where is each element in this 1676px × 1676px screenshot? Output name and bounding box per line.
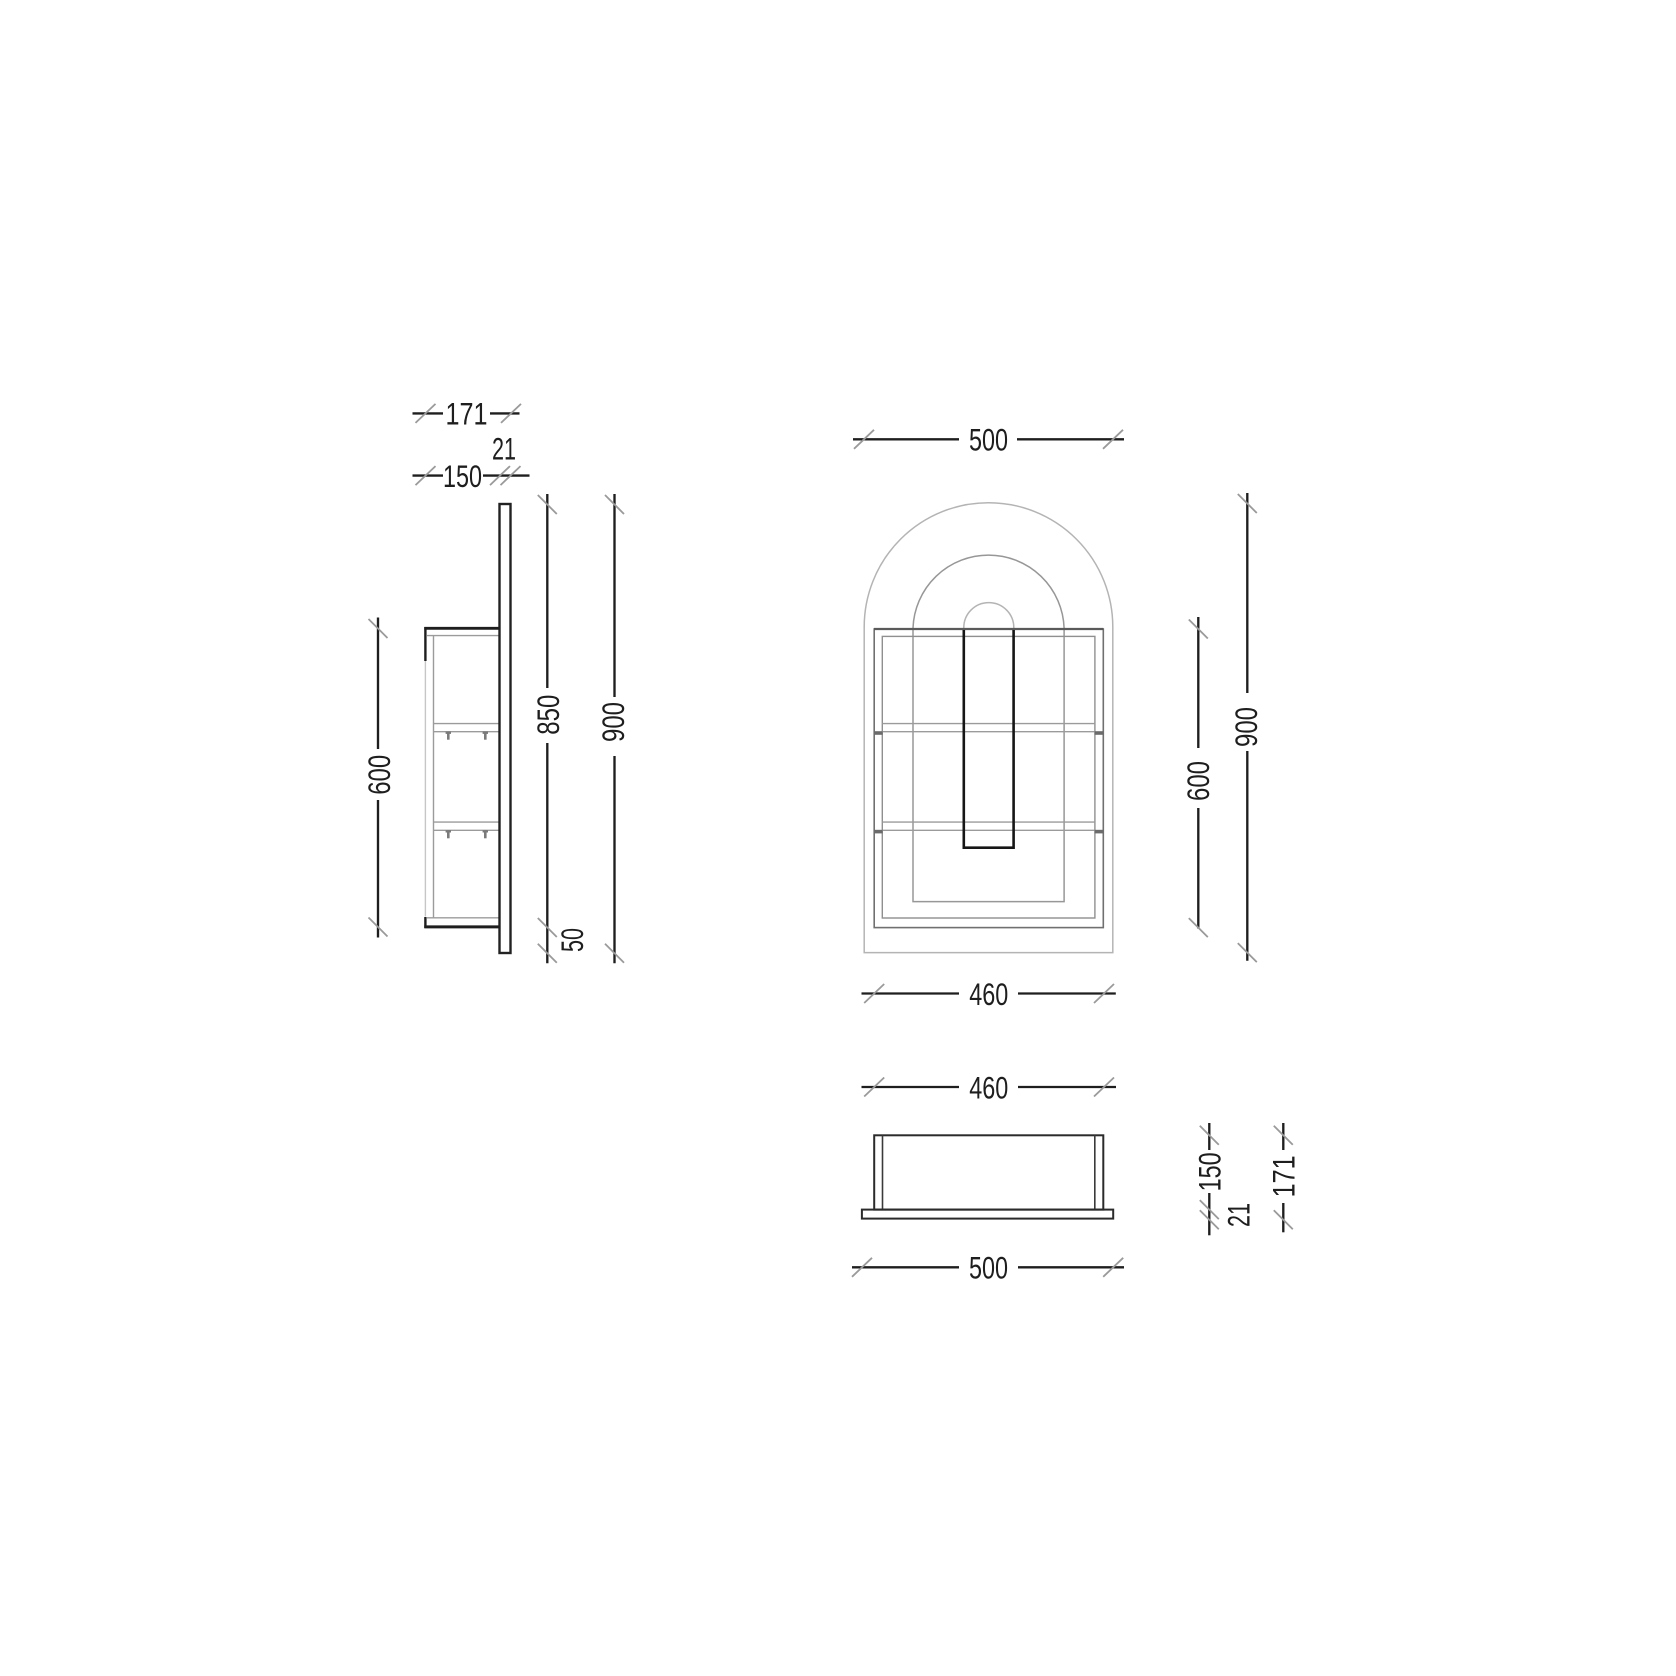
svg-text:460: 460 <box>969 1069 1008 1105</box>
svg-text:600: 600 <box>361 755 397 795</box>
svg-text:460: 460 <box>969 976 1008 1012</box>
svg-text:21: 21 <box>1220 1203 1256 1227</box>
svg-text:600: 600 <box>1180 761 1216 801</box>
svg-text:900: 900 <box>1228 707 1264 747</box>
svg-text:21: 21 <box>492 430 516 466</box>
svg-text:850: 850 <box>530 695 566 735</box>
svg-text:500: 500 <box>969 422 1008 458</box>
svg-text:171: 171 <box>1266 1155 1302 1197</box>
svg-text:171: 171 <box>446 396 488 432</box>
svg-text:900: 900 <box>595 702 631 742</box>
svg-text:500: 500 <box>969 1250 1008 1286</box>
svg-text:150: 150 <box>1192 1152 1228 1191</box>
svg-text:150: 150 <box>443 458 482 494</box>
svg-text:50: 50 <box>554 928 590 952</box>
